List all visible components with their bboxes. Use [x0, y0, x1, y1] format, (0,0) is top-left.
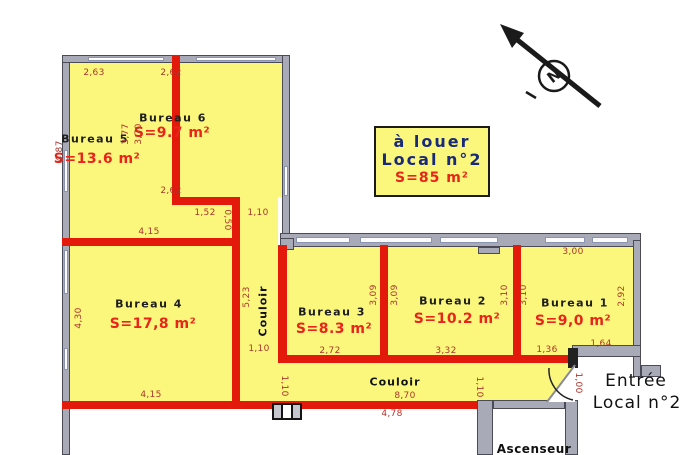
wall-ascenseur-left [477, 400, 493, 455]
dim-divider56-left: 3,77 [121, 123, 131, 144]
dim-corridor-width: 1,10 [248, 344, 269, 354]
room-label-b4: Bureau 4 [115, 298, 183, 311]
window-left-2 [64, 250, 68, 294]
wall-red-b4-top [62, 238, 240, 246]
dim-b1-bottom-right: 1,64 [590, 339, 611, 349]
dim-corridor-length: 5,23 [242, 286, 252, 307]
for-rent-box: à louer Local n°2 S=85 m² [374, 126, 490, 197]
wall-red-divider-b3-b2 [380, 245, 388, 363]
room-area-b1: S=9,0 m² [535, 313, 611, 329]
room-area-b5: S=13.6 m² [54, 151, 140, 167]
dim-b2-right-1: 3,10 [500, 284, 510, 305]
corridor-vertical-label: Couloir [257, 286, 270, 337]
dim-b5-top: 2,63 [83, 68, 104, 78]
dim-b6-top: 2,62 [160, 68, 181, 78]
entree-label-line1: Entrée [605, 371, 667, 391]
dim-b3-bottom: 2,72 [319, 346, 340, 356]
dim-b4-bottom: 4,15 [140, 390, 161, 400]
window-bottomrow-2 [360, 237, 432, 243]
wall-pillar-bump [478, 247, 500, 254]
room-label-b5: Bureau 5 [61, 133, 129, 146]
north-arrow-icon: N [488, 18, 613, 118]
dim-pass-152: 1,52 [194, 208, 215, 218]
entree-label-line2: Local n°2 [593, 393, 682, 413]
window-left-3 [64, 348, 68, 370]
window-bottomrow-4 [545, 237, 585, 243]
dim-hall-width-left: 1,10 [279, 375, 289, 396]
wall-b6-right [282, 55, 290, 245]
floor-plan: N à louer Local n°2 S=85 m² Bureau 5 S=1… [0, 0, 700, 455]
dim-b2-bottom: 3,32 [435, 346, 456, 356]
room-area-b2: S=10.2 m² [414, 311, 500, 327]
window-b6-right [284, 166, 288, 196]
for-rent-line1: à louer [376, 133, 488, 151]
window-top-1 [88, 57, 164, 61]
wall-red-b3-left [278, 245, 287, 363]
dim-hall-length: 8,70 [394, 391, 415, 401]
dim-b5-left: 4,87 [55, 140, 65, 161]
room-area-b3: S=8.3 m² [296, 321, 372, 337]
dim-divider56-right: 3,70 [134, 123, 144, 144]
dim-b3-right-1: 3,09 [369, 284, 379, 305]
for-rent-line2: Local n°2 [376, 151, 488, 169]
wall-red-bottom-long [62, 401, 477, 409]
dim-b1-bottom-left: 1,36 [536, 345, 557, 355]
window-top-2 [196, 57, 276, 61]
room-label-b6: Bureau 6 [139, 112, 207, 125]
dim-b6-bottom: 2,62 [160, 186, 181, 196]
dim-b2-right-2: 3,10 [519, 284, 529, 305]
window-bottomrow-3 [440, 237, 498, 243]
room-label-b3: Bureau 3 [298, 306, 366, 319]
dim-entrance-door: 1,00 [573, 372, 583, 393]
dim-b3-right-2: 3,09 [390, 284, 400, 305]
dim-hall-width-right: 1,10 [474, 376, 484, 397]
svg-text:N: N [544, 65, 565, 87]
wall-red-corridor-left [232, 197, 240, 409]
window-bottomrow-1 [296, 237, 350, 243]
room-label-b1: Bureau 1 [541, 297, 609, 310]
dim-pass-110: 1,10 [247, 208, 268, 218]
room-area-b4: S=17,8 m² [110, 316, 196, 332]
column-box-icon [272, 403, 302, 420]
wall-red-bureaus-bottom [278, 355, 572, 363]
dim-b4-top: 4,15 [138, 227, 159, 237]
room-label-b2: Bureau 2 [419, 295, 487, 308]
dim-hall-under: 4,78 [381, 409, 402, 419]
window-bottomrow-5 [592, 237, 628, 243]
dim-b1-right: 2,92 [617, 285, 627, 306]
for-rent-area: S=85 m² [376, 169, 488, 187]
dim-pass-050: 0,50 [222, 209, 232, 230]
room-area-b6: S=9.7 m² [134, 125, 210, 141]
dim-b4-left: 4,30 [74, 307, 84, 328]
wall-red-b6-bottom [176, 197, 240, 205]
corridor-horizontal-label: Couloir [370, 376, 421, 389]
dim-b1-top: 3,00 [562, 247, 583, 257]
ascenseur-label: Ascenseur [497, 442, 571, 455]
